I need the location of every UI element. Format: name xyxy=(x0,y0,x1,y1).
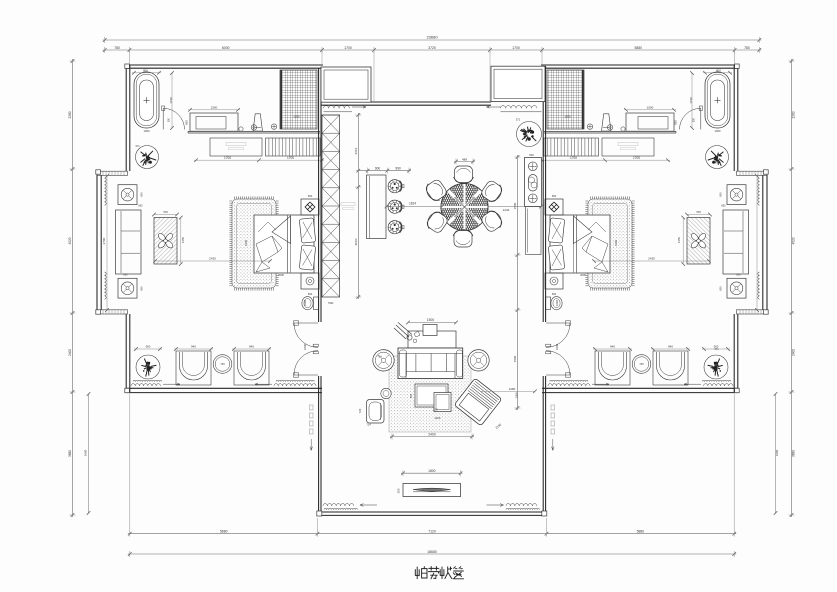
svg-text:1280: 1280 xyxy=(509,387,516,391)
svg-text:1700: 1700 xyxy=(224,156,231,160)
svg-text:5880: 5880 xyxy=(220,530,228,534)
svg-text:1700: 1700 xyxy=(344,46,352,50)
svg-text:1200: 1200 xyxy=(434,416,440,420)
svg-text:2280: 2280 xyxy=(791,111,795,118)
svg-text:900: 900 xyxy=(375,166,381,170)
svg-text:780: 780 xyxy=(744,46,750,50)
svg-text:850: 850 xyxy=(736,274,741,277)
svg-text:1500: 1500 xyxy=(614,240,618,246)
svg-text:725: 725 xyxy=(220,362,225,366)
svg-text:2700: 2700 xyxy=(102,237,106,244)
svg-text:2400: 2400 xyxy=(68,349,72,356)
svg-text:1500: 1500 xyxy=(513,355,517,362)
svg-text:2430: 2430 xyxy=(648,257,655,261)
svg-text:4520: 4520 xyxy=(68,237,72,244)
svg-text:500: 500 xyxy=(308,292,313,296)
svg-text:371: 371 xyxy=(135,144,140,148)
svg-text:850: 850 xyxy=(721,205,726,208)
svg-text:1814: 1814 xyxy=(409,202,416,206)
svg-text:725: 725 xyxy=(639,362,644,366)
svg-text:1700: 1700 xyxy=(570,156,577,160)
svg-text:720: 720 xyxy=(358,408,362,413)
svg-text:600: 600 xyxy=(140,286,144,291)
svg-text:1060: 1060 xyxy=(715,129,721,133)
svg-text:2400: 2400 xyxy=(791,349,795,356)
svg-text:1700: 1700 xyxy=(287,156,294,160)
svg-text:600: 600 xyxy=(719,192,723,197)
svg-text:1094: 1094 xyxy=(303,300,307,306)
svg-text:5880: 5880 xyxy=(635,46,643,50)
svg-text:5880: 5880 xyxy=(637,530,645,534)
svg-text:371: 371 xyxy=(516,118,521,122)
svg-text:2201: 2201 xyxy=(354,147,358,154)
svg-text:550: 550 xyxy=(168,117,171,122)
svg-text:1350: 1350 xyxy=(181,236,185,243)
svg-text:700: 700 xyxy=(696,210,701,214)
svg-text:600: 600 xyxy=(719,286,723,291)
svg-text:1700: 1700 xyxy=(633,156,640,160)
svg-text:780: 780 xyxy=(114,46,120,50)
svg-text:700: 700 xyxy=(163,210,168,214)
svg-text:3680: 3680 xyxy=(775,449,779,456)
svg-text:2280: 2280 xyxy=(68,111,72,118)
svg-text:714: 714 xyxy=(377,355,382,359)
svg-text:850: 850 xyxy=(123,274,128,277)
svg-text:18680: 18680 xyxy=(427,550,437,554)
svg-text:500: 500 xyxy=(308,194,313,198)
svg-text:990: 990 xyxy=(395,166,401,170)
svg-text:1500: 1500 xyxy=(513,202,517,209)
svg-text:600: 600 xyxy=(674,120,678,125)
svg-text:714: 714 xyxy=(366,423,371,427)
svg-text:488: 488 xyxy=(462,157,467,161)
svg-text:1000: 1000 xyxy=(303,344,307,350)
svg-text:550: 550 xyxy=(693,117,696,122)
svg-text:940: 940 xyxy=(191,345,196,349)
svg-text:1500: 1500 xyxy=(211,105,218,109)
svg-text:2430: 2430 xyxy=(209,257,216,261)
svg-text:1730: 1730 xyxy=(169,97,173,104)
svg-text:1200: 1200 xyxy=(565,115,571,119)
svg-text:940: 940 xyxy=(249,345,254,349)
svg-text:3680: 3680 xyxy=(84,449,88,456)
svg-text:500: 500 xyxy=(552,292,557,296)
svg-text:7120: 7120 xyxy=(428,530,436,534)
svg-text:500: 500 xyxy=(529,153,534,157)
svg-text:1094: 1094 xyxy=(555,300,559,306)
svg-text:650: 650 xyxy=(409,393,413,398)
svg-text:600: 600 xyxy=(185,120,189,125)
svg-text:1300: 1300 xyxy=(515,392,519,398)
svg-text:3680: 3680 xyxy=(791,450,795,457)
svg-text:500: 500 xyxy=(328,301,333,305)
svg-text:1800: 1800 xyxy=(428,469,436,473)
svg-text:600: 600 xyxy=(140,192,144,197)
svg-text:1500: 1500 xyxy=(647,105,654,109)
svg-text:800: 800 xyxy=(716,69,721,73)
svg-text:4520: 4520 xyxy=(791,237,795,244)
svg-text:3720: 3720 xyxy=(428,46,436,50)
svg-text:850: 850 xyxy=(138,205,143,208)
svg-text:940: 940 xyxy=(610,345,615,349)
svg-text:350: 350 xyxy=(397,488,401,493)
svg-text:940: 940 xyxy=(668,345,673,349)
svg-text:23680: 23680 xyxy=(426,35,438,40)
svg-text:500: 500 xyxy=(552,194,557,198)
svg-text:3680: 3680 xyxy=(68,450,72,457)
svg-text:1500: 1500 xyxy=(244,240,248,246)
svg-text:6000: 6000 xyxy=(222,46,230,50)
svg-text:360: 360 xyxy=(714,345,719,349)
svg-text:2400: 2400 xyxy=(428,432,436,436)
svg-text:1234: 1234 xyxy=(503,208,510,212)
svg-text:2000: 2000 xyxy=(278,273,284,277)
svg-text:1700: 1700 xyxy=(512,46,520,50)
svg-text:1200: 1200 xyxy=(294,115,300,119)
svg-text:1060: 1060 xyxy=(144,129,150,133)
svg-text:800: 800 xyxy=(143,69,148,73)
svg-text:1730: 1730 xyxy=(689,97,693,104)
svg-text:320: 320 xyxy=(433,407,438,411)
svg-text:1500: 1500 xyxy=(427,318,435,322)
svg-text:1350: 1350 xyxy=(677,236,681,243)
svg-text:3000: 3000 xyxy=(354,238,358,245)
svg-text:2000: 2000 xyxy=(580,273,586,277)
svg-text:1000: 1000 xyxy=(555,344,559,350)
svg-text:360: 360 xyxy=(146,345,151,349)
